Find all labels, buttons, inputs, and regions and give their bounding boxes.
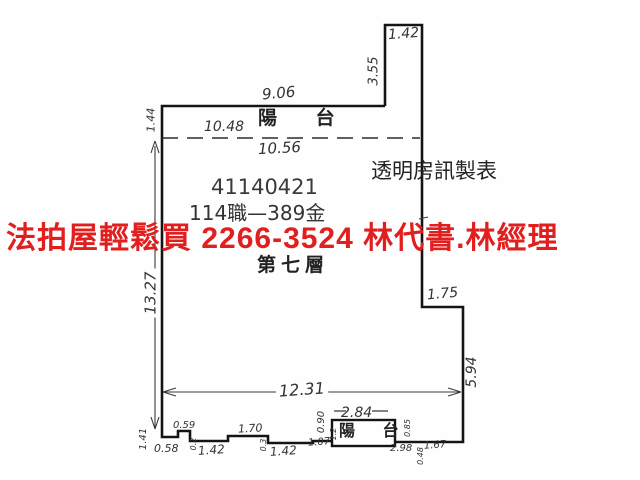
dim-seg-142-a: 1.42	[198, 443, 225, 457]
wall-tick	[419, 217, 428, 219]
dim-right-step-width: 1.75	[426, 286, 458, 303]
dim-seg-142-b: 1.42	[270, 444, 297, 458]
maker-label: 透明房訊製表	[371, 161, 497, 182]
dim-seg-058: 0.58	[154, 443, 179, 454]
dim-balcony-inner-width: 10.48	[204, 120, 244, 134]
dim-seg-107: 1.07	[308, 437, 331, 449]
dim-right-lower-height: 5.94	[465, 356, 479, 387]
dim-left-height: 13.27	[144, 269, 159, 318]
dim-balcony-depth: 1.44	[146, 108, 157, 133]
doc-number: 41140421	[211, 177, 318, 198]
dim-balcony-outer-width: 10.56	[258, 140, 302, 157]
dim-step-03: 0.3	[260, 439, 268, 452]
dim-protrusion-top-width: 1.42	[388, 26, 420, 42]
dim-tick-12: 1.2	[330, 428, 338, 441]
floor-label: 第七層	[257, 256, 329, 275]
watermark-text: 法拍屋輕鬆買 2266-3524 林代書.林經理	[6, 222, 640, 256]
balcony-label-bottom: 陽 台	[339, 423, 410, 439]
dim-bottom-inner-width: 12.31	[276, 380, 329, 400]
dim-seg-059: 0.59	[173, 421, 195, 431]
dim-top-edge-width: 9.06	[261, 85, 296, 103]
dim-seg-298: 2.98	[390, 444, 412, 454]
floorplan-scan: 1.42 3.55 9.06 陽 台 10.48 10.56 1.44 4114…	[0, 0, 640, 480]
dim-bottom-balcony-width: 2.84	[341, 406, 372, 420]
dim-seg-170: 1.70	[238, 422, 263, 434]
balcony-label-top: 陽 台	[258, 109, 351, 128]
dim-seg-167: 1.67	[424, 440, 447, 452]
doc-ref: 114職—389金	[189, 203, 325, 223]
dim-protrusion-height: 3.55	[368, 57, 381, 86]
dim-bottom-left-height: 1.41	[139, 428, 149, 450]
dim-bottom-balcony-depth: 0.90	[317, 411, 327, 433]
